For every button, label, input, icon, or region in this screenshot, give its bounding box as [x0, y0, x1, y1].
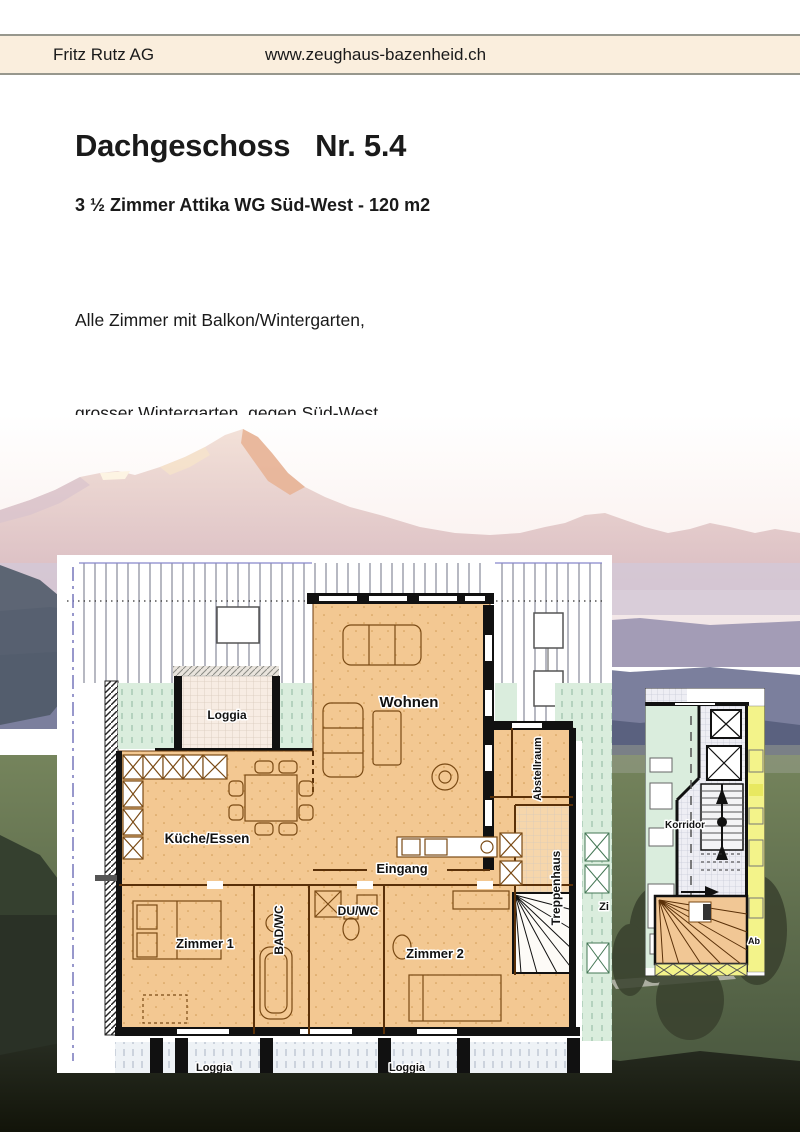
- page-title: Dachgeschoss Nr. 5.4: [75, 128, 406, 164]
- bottom-yellow-strip: [655, 964, 747, 976]
- stairwell-window: [675, 703, 715, 705]
- website-link[interactable]: www.zeughaus-bazenheid.ch: [265, 36, 486, 73]
- listing-subtitle: 3 ½ Zimmer Attika WG Süd-West - 120 m2: [75, 195, 430, 216]
- main-floorplan: Loggia Wohnen Küche/Essen Eingang BAD/WC…: [57, 555, 612, 1073]
- flyer-page: Fritz Rutz AG www.zeughaus-bazenheid.ch …: [0, 0, 800, 1132]
- header-bar: Fritz Rutz AG www.zeughaus-bazenheid.ch: [0, 34, 800, 75]
- label-abstellraum: Abstellraum: [532, 737, 544, 801]
- label-treppenhaus: Treppenhaus: [549, 850, 563, 925]
- description-line: Alle Zimmer mit Balkon/Wintergarten,: [75, 305, 499, 336]
- label-bad-wc: BAD/WC: [272, 905, 286, 955]
- label-korridor: Korridor: [665, 820, 705, 831]
- company-name: Fritz Rutz AG: [53, 36, 154, 73]
- bottom-loggia-strip: [115, 1038, 580, 1073]
- label-eingang: Eingang: [376, 861, 427, 876]
- label-zimmer2: Zimmer 2: [406, 946, 464, 961]
- treppenhaus-stairs: [513, 805, 573, 973]
- stairwell-yellow-column: [747, 706, 765, 972]
- label-loggia-bottom-left: Loggia: [196, 1062, 233, 1073]
- label-zimmer1: Zimmer 1: [176, 936, 234, 951]
- label-neighbor-zimmer: Zi: [599, 901, 609, 913]
- elevator-shafts: [707, 710, 741, 780]
- label-abstell-partial: Ab: [748, 936, 760, 946]
- stairwell-top-grid: [645, 688, 687, 704]
- winder-stair: [655, 896, 747, 964]
- label-loggia-bottom-right: Loggia: [389, 1062, 426, 1073]
- label-wohnen: Wohnen: [380, 694, 439, 711]
- stairwell-plan: Korridor Ab: [645, 688, 765, 976]
- label-loggia-top: Loggia: [207, 708, 247, 722]
- label-kueche-essen: Küche/Essen: [165, 831, 250, 846]
- label-du-wc: DU/WC: [338, 904, 379, 918]
